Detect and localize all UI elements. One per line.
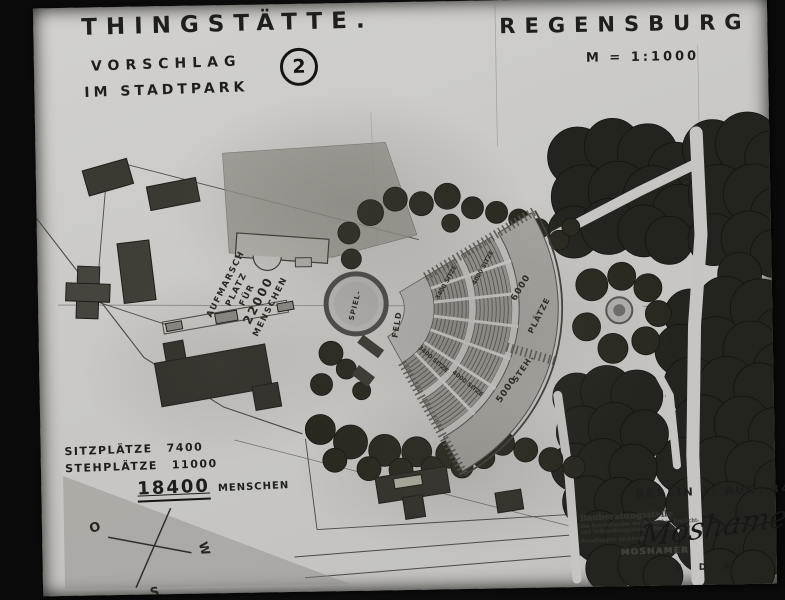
drawing-paper: AUFMARSCH PLATZ FÜR 22000 MENSCHEN SPIEL… xyxy=(33,0,777,596)
city-title: REGENSBURG xyxy=(499,10,751,38)
seats-value: 7400 xyxy=(166,440,203,454)
architect-credentials: B D A xyxy=(675,562,738,573)
standing-value: 11000 xyxy=(172,457,218,472)
standing-row: STEHPLÄTZE 11000 xyxy=(65,457,218,475)
total-value: 18400 xyxy=(137,476,211,503)
standing-label: STEHPLÄTZE xyxy=(65,459,158,475)
sheet-number: 2 xyxy=(292,56,306,78)
total-label: MENSCHEN xyxy=(218,480,290,494)
scale-label: M = 1:1000 xyxy=(586,49,700,66)
photograph-frame: AUFMARSCH PLATZ FÜR 22000 MENSCHEN SPIEL… xyxy=(0,0,785,600)
capacity-block: SITZPLÄTZE 7400 STEHPLÄTZE 11000 xyxy=(64,440,218,479)
seats-label: SITZPLÄTZE xyxy=(64,442,153,458)
